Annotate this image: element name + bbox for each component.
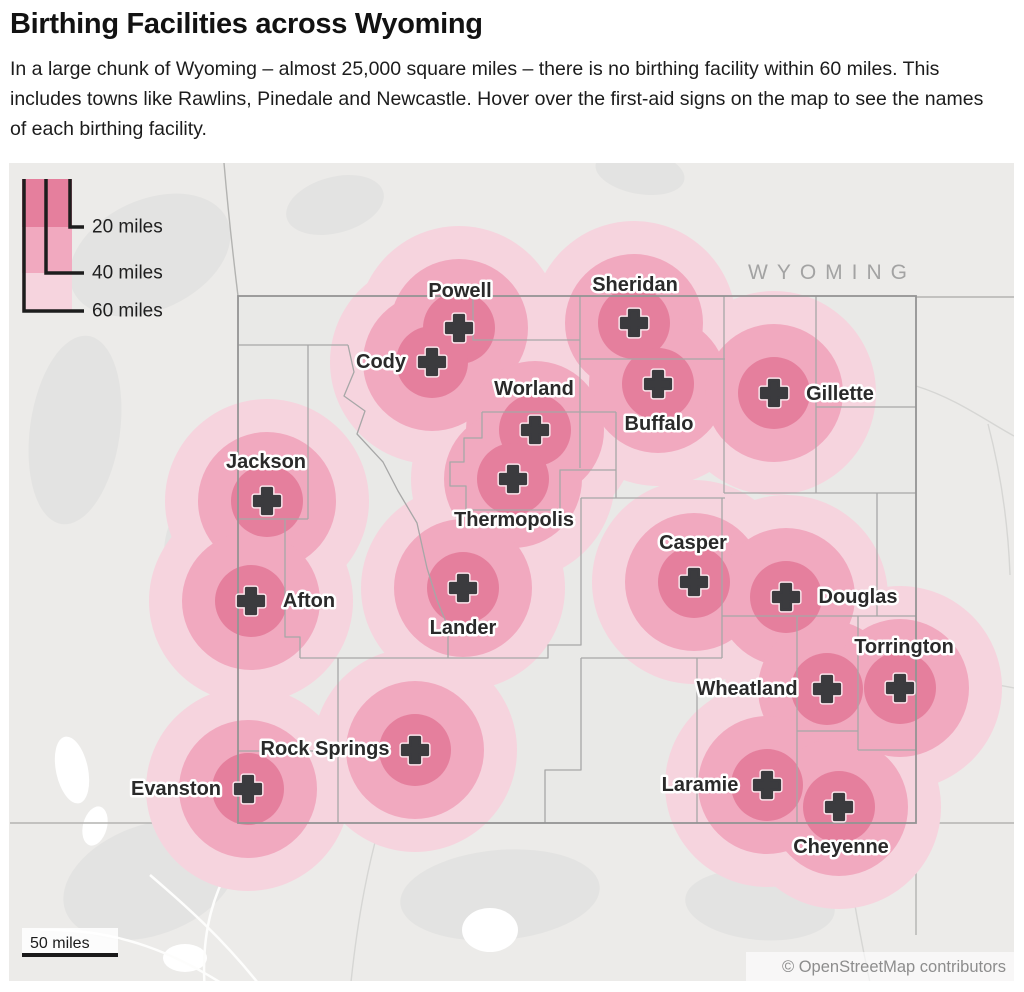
facility-label-cheyenne: Cheyenne bbox=[793, 836, 889, 858]
facility-label-sheridan: Sheridan bbox=[592, 274, 678, 296]
map-canvas: WYOMING PowellCodySheridanBuffaloGillett… bbox=[9, 163, 1014, 981]
legend-label-20mi: 20 miles bbox=[92, 217, 163, 238]
map-attribution: © OpenStreetMap contributors bbox=[746, 952, 1014, 981]
page-header: Birthing Facilities across Wyoming In a … bbox=[10, 0, 1012, 144]
facility-label-torrington: Torrington bbox=[854, 636, 954, 658]
facility-label-lander: Lander bbox=[430, 617, 497, 639]
facility-label-afton: Afton bbox=[283, 590, 335, 612]
legend-swatch-60mi bbox=[22, 273, 72, 311]
attribution-label: © OpenStreetMap contributors bbox=[782, 958, 1006, 976]
facility-label-rock-springs: Rock Springs bbox=[261, 738, 390, 760]
facility-label-evanston: Evanston bbox=[131, 778, 221, 800]
legend-label-60mi: 60 miles bbox=[92, 301, 163, 322]
facility-label-buffalo: Buffalo bbox=[625, 413, 694, 435]
facility-label-worland: Worland bbox=[494, 378, 574, 400]
facility-label-douglas: Douglas bbox=[819, 586, 898, 608]
facility-label-jackson: Jackson bbox=[226, 451, 306, 473]
facility-label-thermopolis: Thermopolis bbox=[454, 509, 574, 531]
state-name-label: WYOMING bbox=[748, 261, 916, 284]
wyoming-map: WYOMING PowellCodySheridanBuffaloGillett… bbox=[9, 163, 1014, 981]
scale-bar-label: 50 miles bbox=[30, 935, 90, 952]
facility-label-gillette: Gillette bbox=[806, 383, 874, 405]
facility-label-casper: Casper bbox=[659, 532, 727, 554]
facility-label-cody: Cody bbox=[356, 351, 407, 373]
facility-label-laramie: Laramie bbox=[662, 774, 739, 796]
facility-label-powell: Powell bbox=[428, 280, 491, 302]
legend-label-40mi: 40 miles bbox=[92, 263, 163, 284]
scale-bar: 50 miles bbox=[22, 928, 118, 957]
facility-label-wheatland: Wheatland bbox=[696, 678, 797, 700]
page-title: Birthing Facilities across Wyoming bbox=[10, 8, 1012, 41]
scale-bar-rule bbox=[22, 953, 118, 957]
page-subtitle: In a large chunk of Wyoming – almost 25,… bbox=[10, 54, 1002, 144]
